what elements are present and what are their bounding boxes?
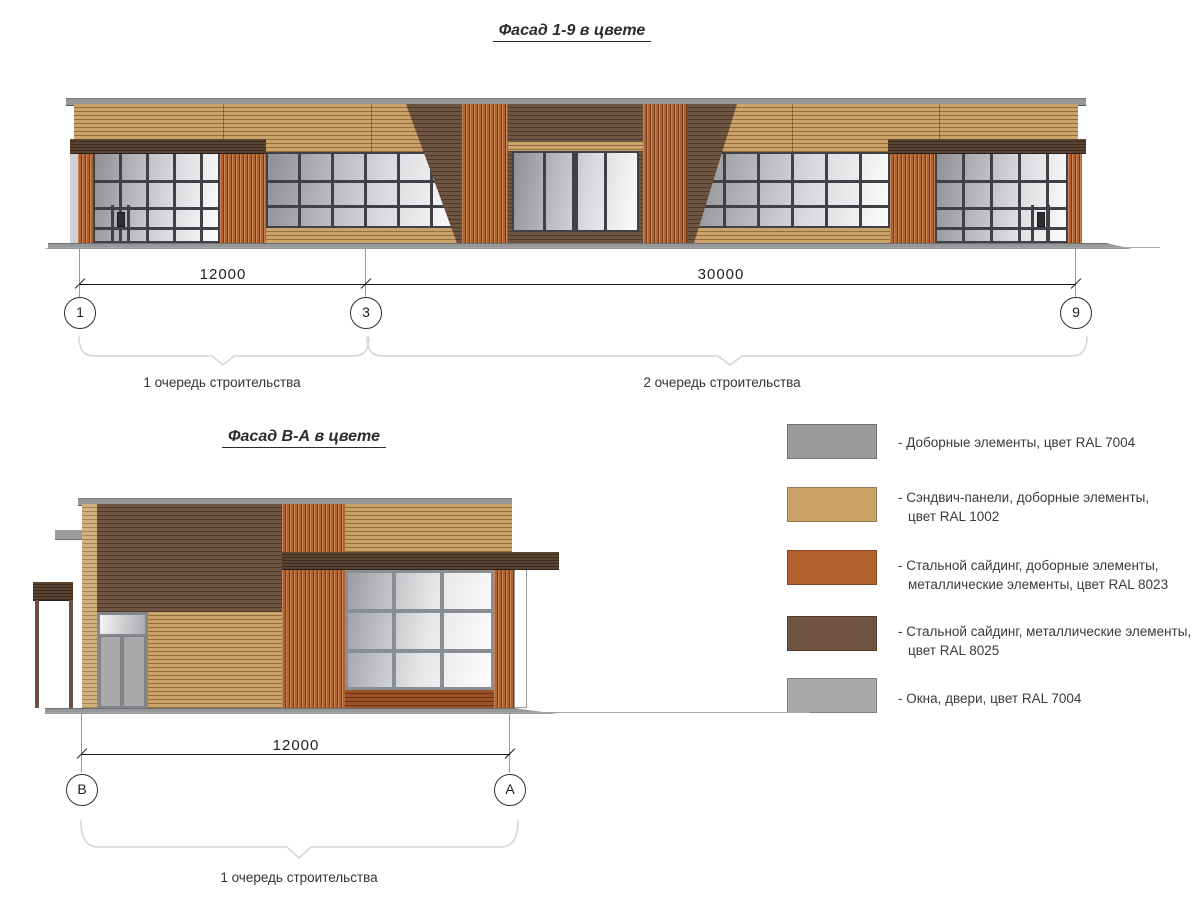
door-leaf-left [100, 636, 121, 707]
tan-siding-block [148, 612, 282, 710]
axis-bubble-1: 1 [64, 297, 96, 329]
tan-siding-top-block [345, 504, 512, 552]
canopy-beam [282, 552, 559, 570]
orange-pillar-center-left [462, 104, 508, 243]
extension-line-axis9 [1075, 247, 1076, 297]
phase1-label-ba: 1 очередь строительства [149, 870, 449, 885]
phase2-brace [366, 336, 1088, 366]
door-handle [117, 212, 125, 227]
facade-b-a-title: Фасад В-А в цвете [152, 428, 456, 446]
orange-pillar [890, 152, 935, 243]
legend-item-siding8023: - Стальной сайдинг, доборные элементы, м… [898, 556, 1168, 594]
entrance-canopy-right [888, 139, 1086, 154]
siding-band-joint [371, 104, 372, 152]
door-transom-glass [100, 615, 145, 634]
legend-line: - Стальной сайдинг, доборные элементы, [898, 556, 1168, 575]
legend-line: - Стальной сайдинг, металлические элемен… [898, 622, 1191, 641]
axis-bubble-B: В [66, 774, 98, 806]
orange-pillar-center-right [643, 104, 687, 243]
porch-post-right [69, 600, 73, 708]
legend-line: цвет RAL 1002 [898, 507, 1149, 526]
orange-slat-pillar [282, 504, 345, 710]
legend-line: - Сэндвич-панели, доборные элементы, [898, 488, 1149, 507]
orange-pillar [220, 152, 266, 243]
ground-slab-facadeBA [45, 708, 513, 714]
facade-1-9-title: Фасад 1-9 в цвете [420, 22, 724, 40]
phase1-brace-ba [80, 820, 520, 860]
extension-line-axis1 [79, 247, 80, 297]
legend-swatch-windows [787, 678, 877, 713]
door-leaf-right [123, 636, 145, 707]
extension-line-axisA [509, 713, 510, 773]
corner-post [514, 568, 527, 708]
center-storefront-window [512, 151, 639, 232]
legend-item-dobornye: - Доборные элементы, цвет RAL 7004 [898, 433, 1135, 452]
legend-swatch-ral8025 [787, 616, 877, 651]
ground-line [45, 712, 810, 713]
orange-sill-siding [345, 690, 494, 708]
axis-bubble-3: 3 [350, 297, 382, 329]
legend-item-okna: - Окна, двери, цвет RAL 7004 [898, 689, 1081, 708]
siding-head-strip [508, 142, 643, 151]
dark-siding-block [97, 504, 282, 612]
siding-sill-strip [690, 228, 890, 243]
porch-beam [33, 582, 73, 601]
axis-bubble-A: А [494, 774, 526, 806]
entrance-canopy-left [70, 139, 266, 154]
dimension-value-12000: 12000 [196, 737, 396, 754]
legend-item-sandwich: - Сэндвич-панели, доборные элементы, цве… [898, 488, 1149, 526]
legend-swatch-ral1002 [787, 487, 877, 522]
corner-trim [70, 152, 78, 243]
ground-line [48, 247, 1160, 248]
facade-1-9-title-text: Фасад 1-9 в цвете [493, 22, 652, 42]
legend-item-siding8025: - Стальной сайдинг, металлические элемен… [898, 622, 1191, 660]
window-wall-section3 [690, 152, 890, 228]
dimension-value-30000: 30000 [621, 266, 821, 283]
legend-line: цвет RAL 8025 [898, 641, 1191, 660]
extension-line-axis3 [365, 247, 366, 297]
facade-b-a-title-text: Фасад В-А в цвете [222, 428, 386, 448]
legend-line: - Окна, двери, цвет RAL 7004 [898, 689, 1081, 708]
door-handle [1037, 212, 1045, 227]
drawing-sheet: { "colors": { "ral7004": "#9a9a9c", "ral… [0, 0, 1200, 900]
ground-ramp-right [1106, 243, 1132, 249]
legend-swatch-ral8023 [787, 550, 877, 585]
orange-pilaster [78, 152, 93, 243]
orange-slat-wall [494, 568, 514, 708]
extension-line-axisB [81, 713, 82, 773]
porch-post-left [35, 600, 39, 708]
legend-line: металлические элементы, цвет RAL 8023 [898, 575, 1168, 594]
dimension-line-facadeBA [82, 754, 510, 755]
axis-bubble-9: 9 [1060, 297, 1092, 329]
ground-slab-facade19 [48, 243, 1106, 249]
orange-pilaster [1068, 152, 1082, 243]
legend-line: - Доборные элементы, цвет RAL 7004 [898, 433, 1135, 452]
siding-band-joint [792, 104, 793, 152]
dimension-line-facade19 [80, 284, 1076, 285]
phase2-label: 2 очередь строительства [572, 375, 872, 390]
window-3x3 [345, 570, 494, 690]
siding-sill-strip [266, 228, 462, 243]
tan-corner-column [82, 504, 97, 710]
ground-ramp [513, 708, 558, 714]
dimension-value-12000: 12000 [123, 266, 323, 283]
wall-ledge [55, 530, 82, 540]
legend-swatch-ral7004 [787, 424, 877, 459]
phase1-brace [78, 336, 370, 366]
phase1-label: 1 очередь строительства [72, 375, 372, 390]
